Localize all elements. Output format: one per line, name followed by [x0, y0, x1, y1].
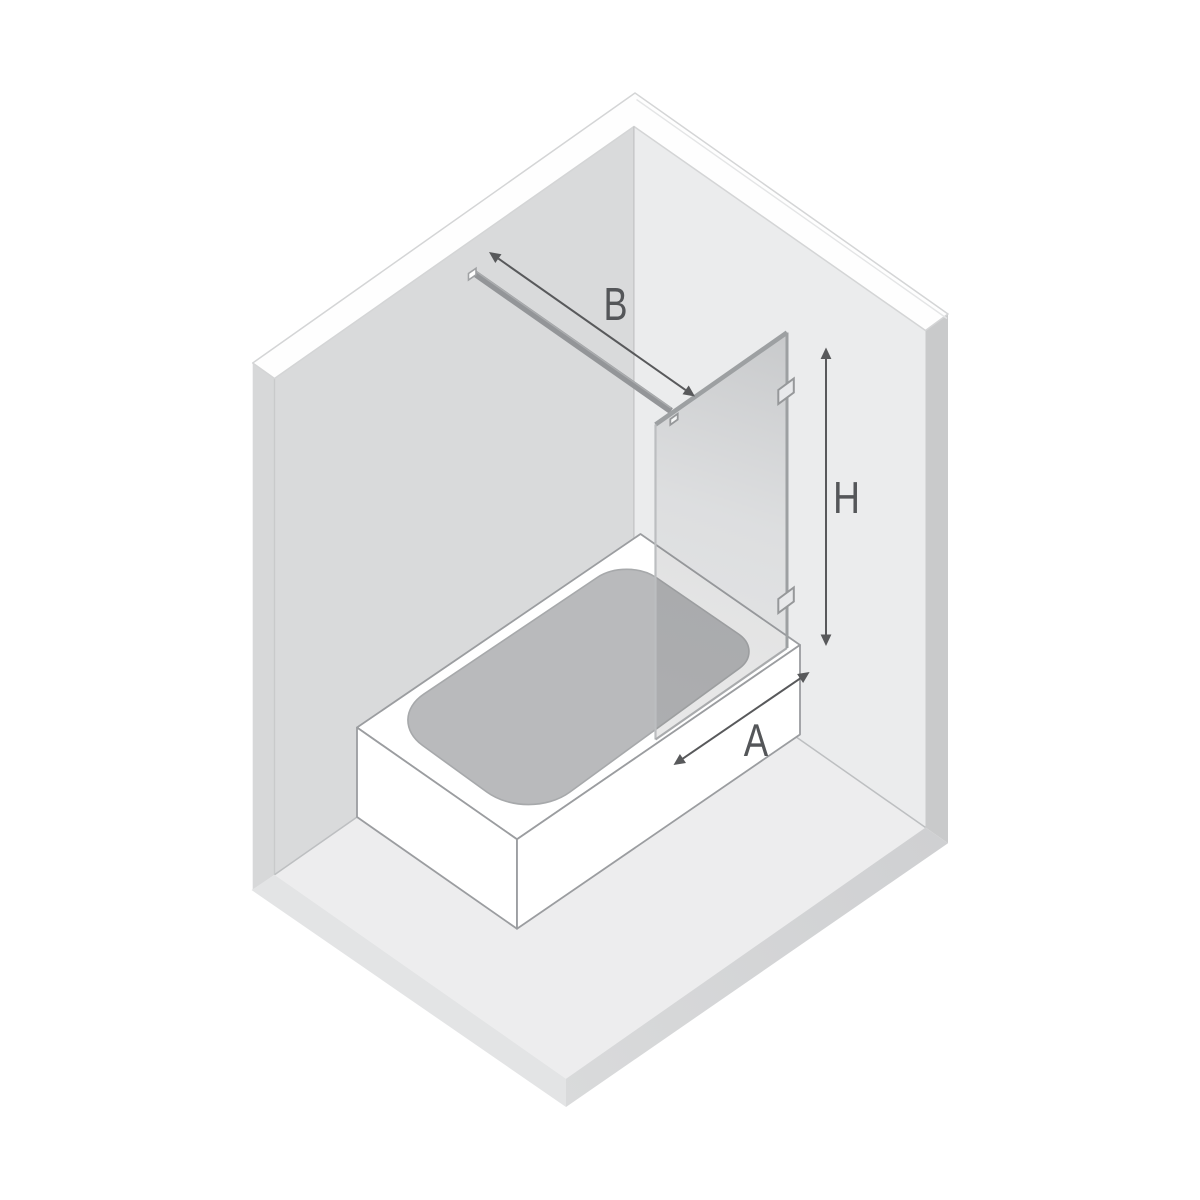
- svg-text:B: B: [603, 278, 627, 330]
- svg-text:A: A: [744, 714, 769, 766]
- svg-text:H: H: [833, 472, 860, 523]
